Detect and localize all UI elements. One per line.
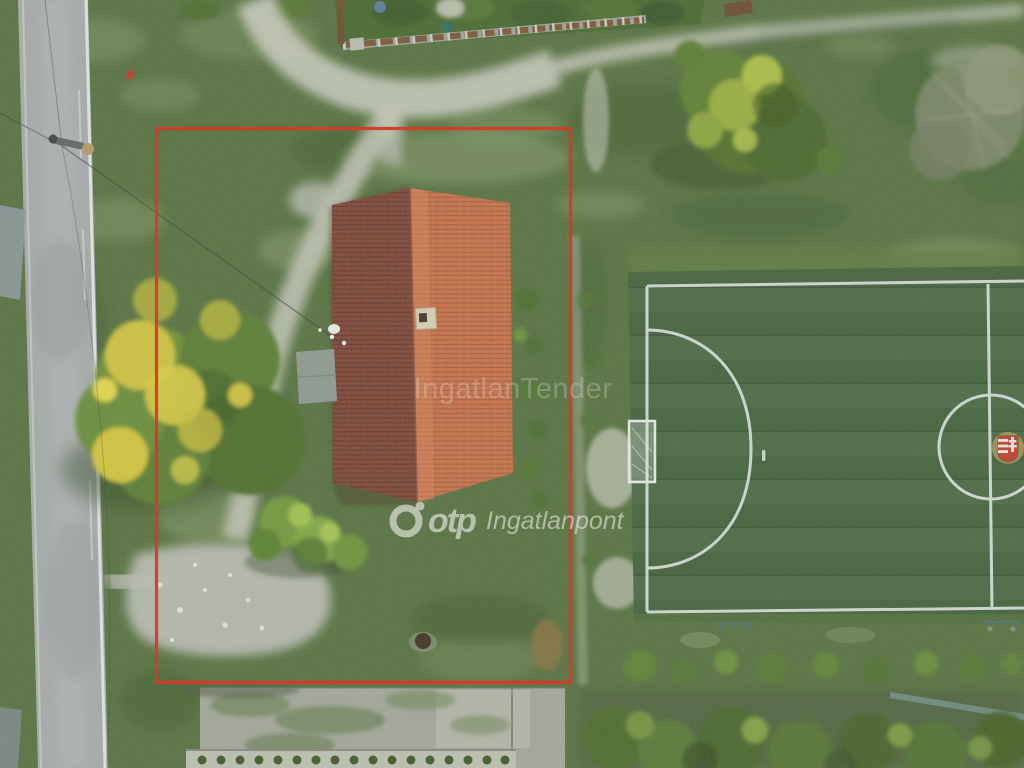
aerial-photo-frame: IngatlanTender otp Ingatlanpont	[0, 0, 1024, 768]
watermark-brand-bold: otp	[428, 502, 476, 540]
watermark-brand-rest: Ingatlanpont	[486, 507, 625, 535]
watermark-text-center: IngatlanTender	[414, 373, 613, 405]
aerial-photo: IngatlanTender otp Ingatlanpont	[0, 0, 1024, 768]
